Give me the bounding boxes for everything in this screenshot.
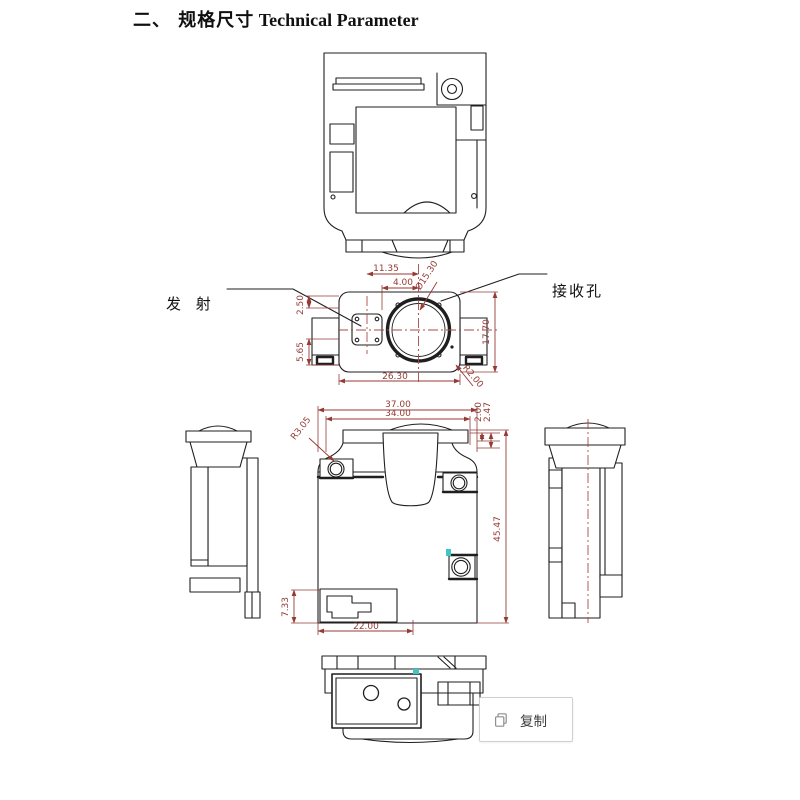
front-view-drawing	[227, 274, 547, 372]
highlight-mark	[413, 669, 419, 674]
copy-context-menu[interactable]: 复制	[479, 697, 573, 742]
copy-label: 复制	[520, 710, 547, 730]
dim-receiver-diameter: Ø15.30	[413, 259, 440, 293]
technical-drawing: 11.35 4.00 Ø15.30 2.50 5.65 17.70 26.30 …	[0, 0, 800, 800]
dim-edge-to-center: 4.00	[393, 278, 413, 288]
dim-tab-height: 5.65	[296, 342, 306, 362]
dim-connector-width: 22.00	[353, 622, 379, 632]
emitter-label: 发 射	[166, 295, 216, 313]
dim-body-width: 26.30	[382, 372, 408, 382]
dim-lens-width: 34.00	[385, 409, 411, 419]
left-side-view-drawing	[186, 426, 260, 618]
highlight-mark	[446, 549, 451, 556]
dim-overall-height: 45.47	[493, 516, 503, 542]
dim-connector-height: 7.33	[281, 597, 291, 617]
receiver-label: 接收孔	[552, 282, 603, 300]
copy-icon	[493, 712, 509, 728]
dim-tab-offset: 2.50	[296, 295, 306, 315]
dim-top-offset-b: 2.47	[483, 402, 493, 422]
bottom-view-drawing	[322, 656, 486, 743]
back-view-drawing	[318, 424, 477, 623]
top-view-drawing	[324, 53, 486, 258]
dim-body-height: 17.70	[482, 319, 492, 345]
dim-emitter-to-center: 11.35	[373, 264, 399, 274]
right-side-view-drawing	[545, 423, 625, 618]
